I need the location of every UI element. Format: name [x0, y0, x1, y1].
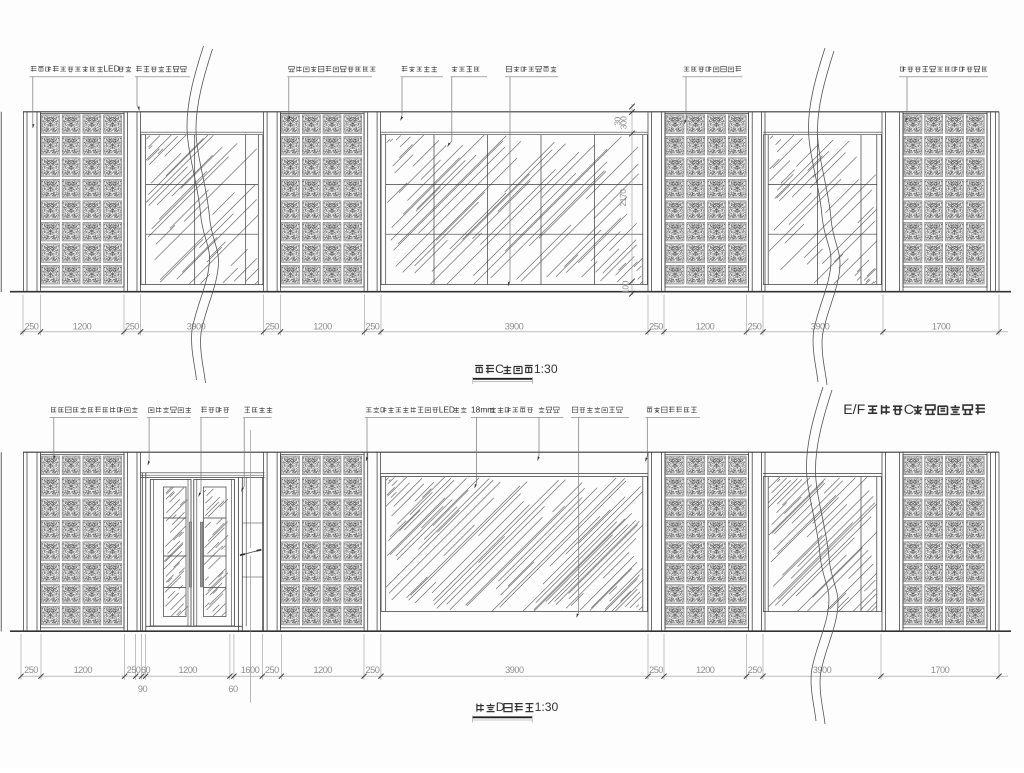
svg-text:1700: 1700	[931, 665, 950, 675]
svg-text:90: 90	[138, 684, 148, 694]
svg-text:250: 250	[649, 665, 663, 675]
svg-text:1200: 1200	[696, 321, 715, 331]
svg-text:2170: 2170	[618, 189, 628, 207]
svg-text:250: 250	[265, 321, 279, 331]
svg-text:1200: 1200	[73, 321, 92, 331]
svg-text:250: 250	[748, 665, 762, 675]
svg-text:1:30: 1:30	[535, 700, 559, 714]
svg-text:1200: 1200	[313, 665, 332, 675]
svg-text:1700: 1700	[932, 321, 951, 331]
svg-text:250: 250	[748, 321, 762, 331]
svg-text:LED: LED	[103, 64, 119, 74]
svg-text:C: C	[495, 362, 504, 376]
svg-text:250: 250	[265, 665, 279, 675]
svg-text:60: 60	[141, 665, 151, 675]
svg-text:250: 250	[25, 321, 39, 331]
svg-text:250: 250	[649, 321, 663, 331]
svg-text:1200: 1200	[313, 321, 332, 331]
svg-text:1200: 1200	[74, 665, 93, 675]
svg-text:100: 100	[621, 280, 631, 294]
svg-text:1200: 1200	[178, 665, 197, 675]
svg-text:250: 250	[365, 665, 379, 675]
svg-text:250: 250	[125, 321, 139, 331]
svg-text:3900: 3900	[505, 321, 524, 331]
svg-text:3900: 3900	[505, 665, 524, 675]
svg-text:1600: 1600	[241, 665, 260, 675]
svg-text:250: 250	[127, 665, 141, 675]
svg-text:1200: 1200	[696, 665, 715, 675]
svg-text:C: C	[904, 402, 914, 418]
svg-text:250: 250	[24, 665, 38, 675]
svg-text:60: 60	[228, 684, 238, 694]
svg-text:250: 250	[366, 321, 380, 331]
svg-text:E/F: E/F	[843, 402, 865, 418]
svg-text:LED: LED	[439, 404, 455, 414]
svg-text:1:30: 1:30	[534, 362, 558, 376]
svg-text:300: 300	[619, 116, 629, 130]
